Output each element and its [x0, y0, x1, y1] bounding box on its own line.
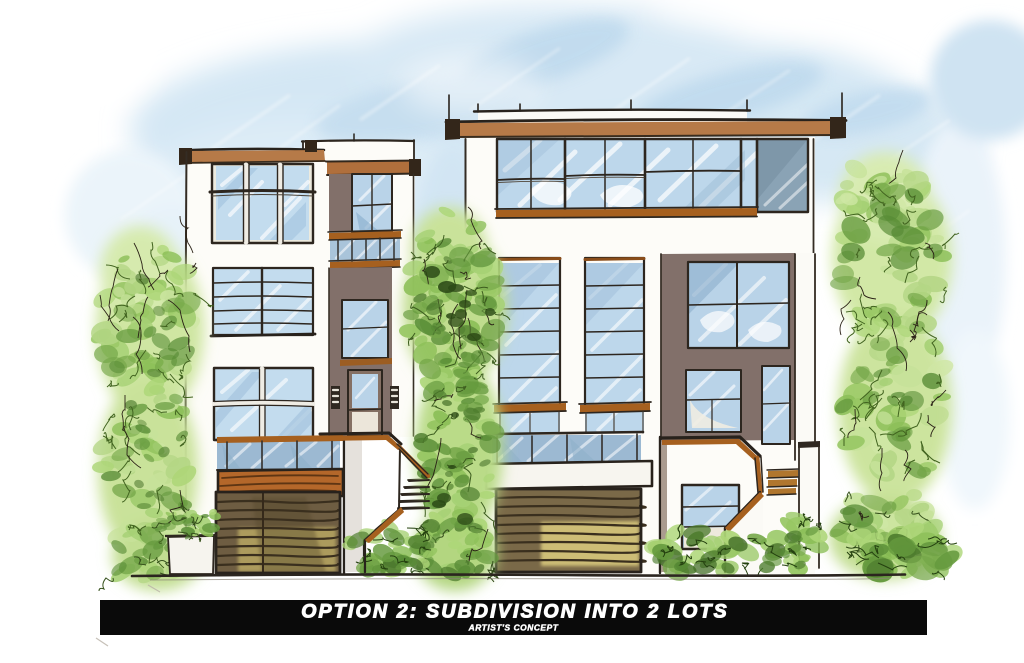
svg-text:OPTION 2: SUBDIVISION INTO 2 L: OPTION 2: SUBDIVISION INTO 2 LOTS: [301, 601, 729, 623]
svg-text:ARTIST'S CONCEPT: ARTIST'S CONCEPT: [468, 623, 559, 633]
